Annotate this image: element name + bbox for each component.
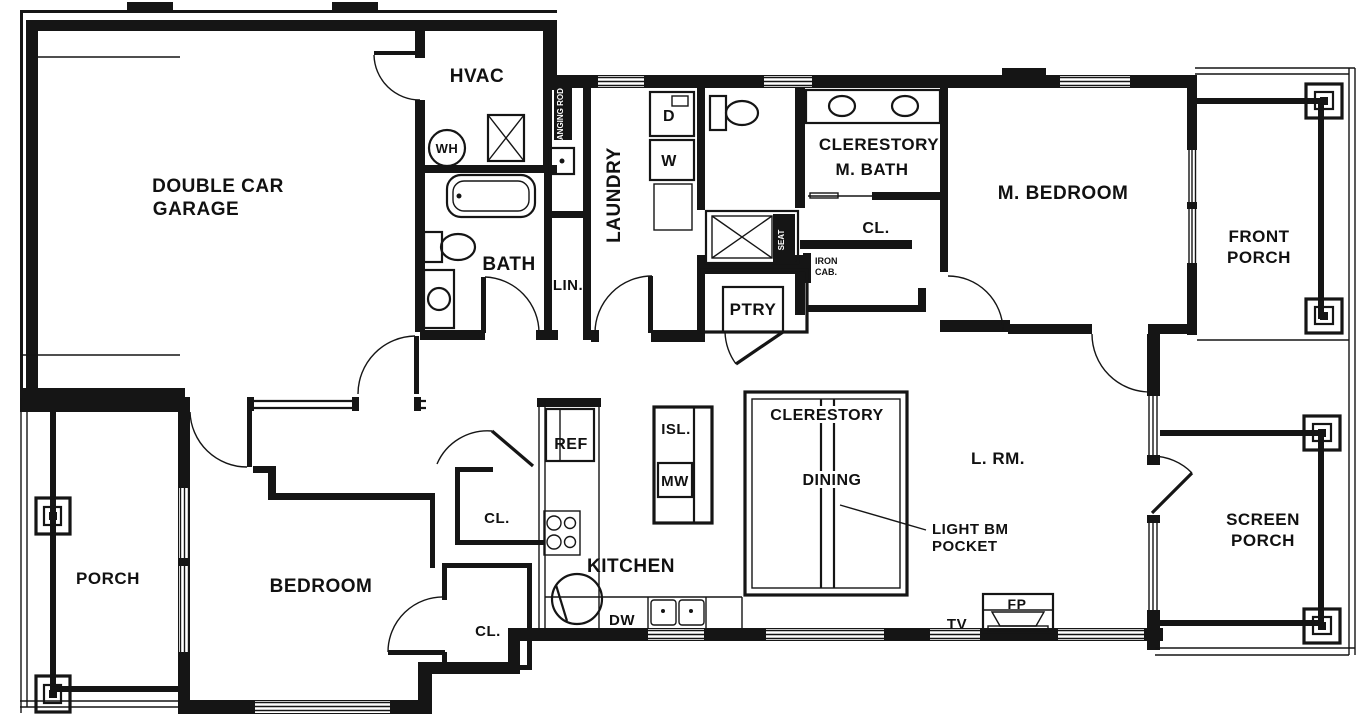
room-label-bedroom: BEDROOM	[270, 576, 373, 597]
window	[255, 701, 390, 713]
closet-rod	[808, 192, 940, 200]
room-label-front-porch-2: PORCH	[1227, 248, 1291, 267]
room-label-dining: DINING	[803, 472, 862, 489]
window	[1147, 515, 1160, 610]
window	[764, 76, 812, 87]
room-label-kitchen: KITCHEN	[587, 556, 675, 577]
room-label-mbedroom: M. BEDROOM	[998, 183, 1129, 204]
room-label-pantry: PTRY	[730, 300, 777, 319]
room-label-screen-porch-2: PORCH	[1231, 531, 1295, 550]
window	[179, 566, 189, 652]
room-label-living: L. RM.	[971, 449, 1025, 468]
door-bath	[481, 277, 539, 333]
corner-sink	[552, 574, 602, 624]
label-hanging-rod: HANGING ROD	[556, 88, 565, 146]
room-label-screen-porch-1: SCREEN	[1226, 510, 1300, 529]
door-closet-upper	[437, 431, 533, 466]
bathtub	[447, 175, 535, 217]
door-master-bedroom	[1092, 332, 1153, 392]
window	[598, 76, 644, 87]
labels: DOUBLE CAR GARAGE HVAC WH BATH LIN. LAUN…	[76, 66, 1300, 640]
refrigerator	[546, 409, 594, 461]
room-label-mbath: M. BATH	[835, 160, 908, 179]
room-label-mbath-clerestory: CLERESTORY	[819, 135, 939, 154]
label-microwave: MW	[661, 473, 689, 490]
door-laundry	[595, 276, 653, 333]
label-shower-seat: SEAT	[777, 230, 786, 251]
label-island: ISL.	[661, 421, 691, 438]
label-washer: W	[661, 153, 677, 170]
room-label-dining-clerestory: CLERESTORY	[770, 407, 883, 424]
room-label-bath: BATH	[482, 254, 535, 275]
door-entry	[190, 410, 252, 467]
room-label-garage-2: GARAGE	[153, 199, 239, 220]
room-label-mcloset: CL.	[862, 220, 889, 237]
window	[648, 629, 704, 640]
door-garage-mud	[358, 336, 419, 394]
room-label-hvac: HVAC	[450, 66, 504, 87]
room-label-linen: LIN.	[553, 277, 583, 294]
room-label-front-porch-1: FRONT	[1228, 227, 1289, 246]
label-iron-cabinet-1: IRON	[815, 256, 838, 266]
window	[766, 629, 884, 640]
door-closet-lower	[388, 597, 445, 655]
floor-plan-drawing: DOUBLE CAR GARAGE HVAC WH BATH LIN. LAUN…	[0, 0, 1362, 717]
label-water-heater: WH	[436, 141, 459, 156]
room-label-garage-1: DOUBLE CAR	[152, 176, 284, 197]
windows	[179, 76, 1197, 713]
window	[1058, 629, 1144, 640]
label-fireplace: FP	[1008, 596, 1027, 612]
room-label-closet-lower: CL.	[475, 623, 501, 640]
toilet	[710, 96, 758, 130]
window	[1187, 150, 1197, 263]
leader-line	[840, 505, 926, 530]
doors	[190, 51, 1192, 655]
laundry-cabinet	[654, 184, 692, 230]
window	[179, 488, 189, 558]
door-pantry	[725, 332, 783, 364]
label-light-beam-2: POCKET	[932, 538, 998, 555]
label-dishwasher: DW	[609, 612, 635, 629]
label-refrigerator: REF	[554, 436, 588, 453]
label-light-beam-1: LIGHT BM	[932, 521, 1009, 538]
double-vanity	[806, 90, 940, 123]
hvac-unit	[488, 115, 524, 161]
label-dryer: D	[663, 108, 675, 125]
door-hvac	[374, 51, 420, 100]
floor-plan: DOUBLE CAR GARAGE HVAC WH BATH LIN. LAUN…	[0, 0, 1362, 717]
cooktop	[544, 511, 580, 555]
window	[1149, 396, 1157, 455]
label-tv: TV	[947, 616, 967, 633]
label-iron-cabinet-2: CAB.	[815, 267, 837, 277]
toilet	[424, 232, 475, 262]
room-label-closet-upper: CL.	[484, 510, 510, 527]
kitchen-sink	[651, 600, 704, 625]
room-label-porch: PORCH	[76, 569, 140, 588]
bath-sink	[424, 270, 454, 328]
room-label-laundry: LAUNDRY	[604, 147, 625, 243]
window	[1060, 76, 1130, 87]
